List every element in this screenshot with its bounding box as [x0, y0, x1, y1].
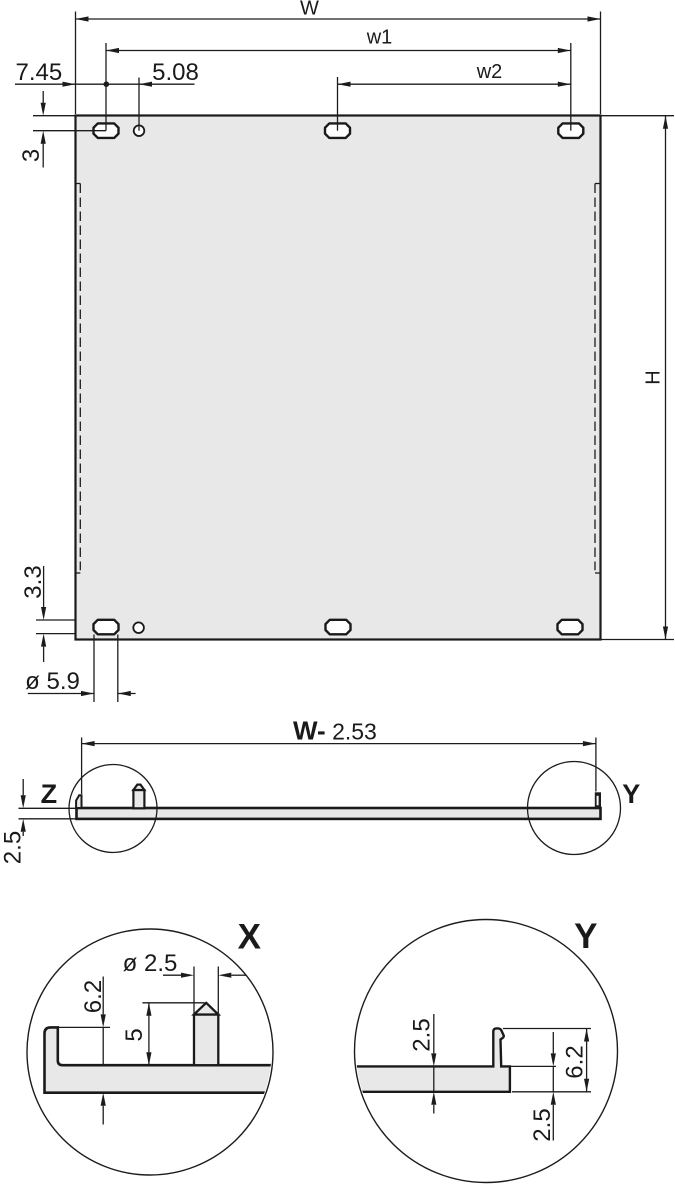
svg-text:6.2: 6.2	[80, 980, 107, 1013]
svg-text:3: 3	[18, 149, 45, 162]
svg-text:ø 5.9: ø 5.9	[25, 668, 80, 695]
svg-text:Y: Y	[574, 917, 597, 956]
svg-text:2.5: 2.5	[409, 1018, 436, 1051]
svg-text:2.5: 2.5	[529, 1108, 556, 1141]
svg-text:Y: Y	[622, 779, 640, 809]
svg-text:w2: w2	[476, 61, 503, 83]
svg-text:W: W	[300, 0, 319, 20]
svg-text:3.3: 3.3	[20, 565, 47, 598]
svg-text:w1: w1	[366, 27, 393, 49]
svg-text:5: 5	[121, 1028, 148, 1041]
svg-text:Z: Z	[41, 779, 58, 809]
svg-text:ø 2.5: ø 2.5	[123, 950, 178, 977]
svg-text:5.08: 5.08	[152, 59, 199, 86]
svg-text:H: H	[643, 370, 665, 384]
svg-text:6.2: 6.2	[562, 1045, 589, 1078]
svg-text:X: X	[238, 918, 262, 957]
svg-text:7.45: 7.45	[16, 59, 63, 86]
svg-text:2.5: 2.5	[0, 831, 26, 864]
svg-text:W- 2.53: W- 2.53	[293, 716, 377, 746]
